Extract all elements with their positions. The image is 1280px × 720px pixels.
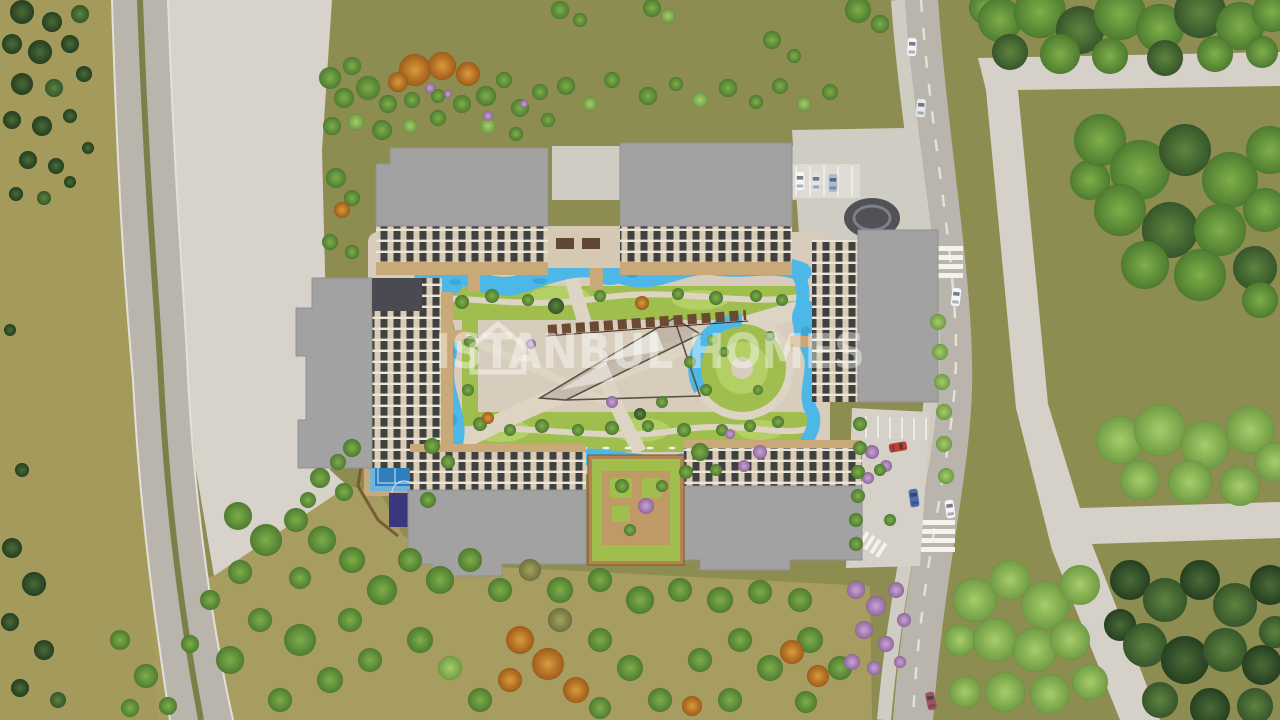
block-west-core-roof [372,278,422,311]
block-north-west-roof [376,148,548,226]
car [907,38,917,56]
car [951,288,962,307]
roof-garden-lawn [592,545,680,561]
roof-garden-lawn [670,471,680,545]
watermark: ISTANBUL HOMES [435,324,865,380]
block-north-east-facade [620,226,792,264]
south-entrance-roof-garden [588,455,684,565]
block-north-west-facade [376,226,548,264]
pergola [582,238,600,249]
car [916,99,926,118]
block-north-west-patios [376,262,548,275]
pergola [556,238,574,249]
block-south-west-facade [410,452,586,492]
car [812,173,821,191]
roof-garden-lawn [612,506,630,522]
block-east-roof [858,230,938,402]
site-plan-svg: ISTANBUL HOMES [0,0,1280,720]
aerial-site-render: ISTANBUL HOMES [0,0,1280,720]
car [796,172,805,190]
roof-garden-lawn [592,471,602,545]
block-north-east-patios [620,262,792,275]
block-north-east-roof [620,143,792,226]
block-south-east-roof [682,486,862,570]
block-south-east-patios [684,440,862,449]
car [829,174,838,192]
watermark-text: ISTANBUL HOMES [435,324,865,380]
roof-garden-lawn [592,459,680,471]
